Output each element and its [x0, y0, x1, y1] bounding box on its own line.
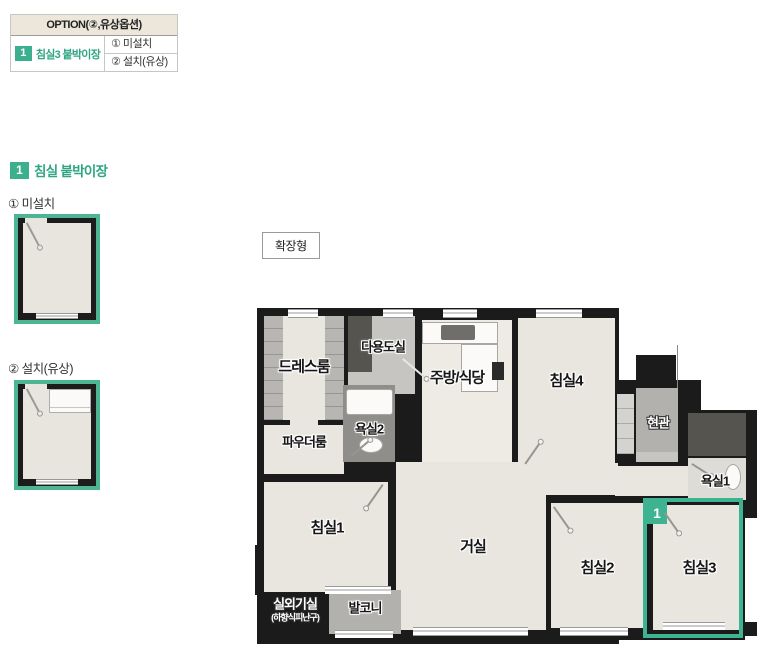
detail-number-badge: 1	[10, 162, 29, 179]
room-label-bath1: 욕실1	[701, 471, 729, 490]
room-label-dress: 드레스룸	[278, 356, 329, 377]
room-label-balcony: 발코니	[349, 598, 382, 617]
room-label-bed4: 침실4	[550, 370, 583, 391]
room-label-utility: 다용도실	[361, 337, 405, 356]
variant-1-diagram	[14, 214, 100, 324]
window-icon	[36, 313, 78, 319]
variant-2-label: ② 설치(유상)	[8, 358, 73, 377]
kitchen-sink-icon	[441, 325, 475, 340]
kitchen-appliance	[492, 362, 504, 380]
option-table-header: OPTION(②,유상옵션)	[11, 15, 177, 36]
bath1-duct	[688, 413, 746, 456]
diagram-walls	[18, 384, 96, 486]
window-icon	[36, 479, 78, 485]
variant-2-diagram	[14, 380, 100, 490]
room-label-living: 거실	[460, 536, 486, 557]
room-label-bed3: 침실3	[683, 557, 716, 578]
page: OPTION(②,유상옵션) 1 침실3 붙박이장 ① 미설치 ② 설치(유상)…	[0, 0, 760, 663]
option-choice-2: ② 설치(유상)	[105, 53, 177, 71]
detail-section-title: 1 침실 붙박이장	[10, 160, 107, 180]
room-bed4	[518, 318, 615, 466]
window	[413, 627, 528, 636]
wall-stub	[264, 420, 290, 425]
window	[560, 627, 628, 636]
window	[335, 630, 393, 638]
room-label-outdoor-sub: (하향식피난구)	[271, 611, 319, 624]
wardrobe-icon	[49, 389, 91, 413]
option-row-title: 1 침실3 붙박이장	[11, 36, 105, 71]
bathtub-icon	[346, 389, 393, 415]
hallway-entry	[615, 466, 690, 496]
floor-plan: 1 드레스룸 다용도실 주방/식당 침실4 현관 욕실2 파우더룸 욕실1 침실…	[255, 300, 758, 650]
option-number-badge: 1	[15, 46, 32, 61]
expand-type-button[interactable]: 확장형	[262, 232, 320, 259]
window	[325, 586, 391, 594]
room-label-entrance: 현관	[647, 413, 669, 432]
entrance-door-line	[677, 345, 678, 388]
wall-block	[255, 545, 263, 595]
variant-1-label: ① 미설치	[8, 193, 55, 212]
room-label-bed2: 침실2	[581, 557, 614, 578]
window	[383, 309, 413, 318]
window	[443, 309, 477, 318]
room-label-bath2: 욕실2	[355, 419, 383, 438]
window	[536, 309, 582, 318]
shoe-cabinet	[617, 394, 634, 454]
option-choice-1: ① 미설치	[105, 36, 177, 53]
entrance-step	[636, 452, 678, 462]
detail-title-text: 침실 붙박이장	[34, 160, 107, 180]
room-label-powder: 파우더룸	[282, 432, 326, 451]
room-label-kitchen: 주방/식당	[430, 367, 484, 388]
window	[288, 309, 318, 318]
diagram-walls	[18, 218, 96, 320]
room-label-bed1: 침실1	[311, 517, 344, 538]
wall-stub	[318, 420, 344, 425]
option-row-label: 침실3 붙박이장	[36, 46, 100, 62]
option-table: OPTION(②,유상옵션) 1 침실3 붙박이장 ① 미설치 ② 설치(유상)	[10, 14, 178, 72]
